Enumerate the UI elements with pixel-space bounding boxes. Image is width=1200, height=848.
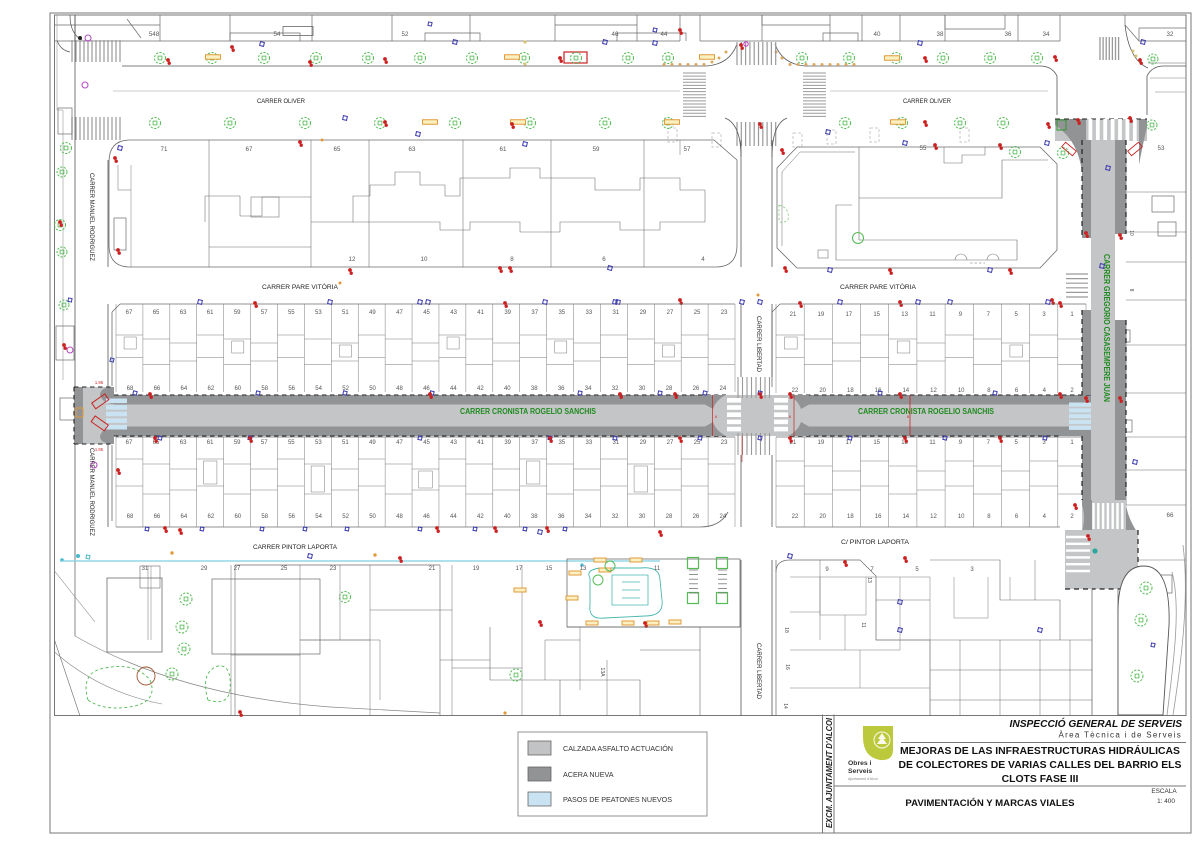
svg-text:31: 31 — [613, 440, 620, 446]
svg-text:63: 63 — [409, 146, 416, 153]
svg-text:57: 57 — [684, 146, 691, 153]
svg-text:ESCALA: ESCALA — [1151, 788, 1177, 795]
svg-text:67: 67 — [246, 146, 253, 153]
svg-text:38: 38 — [937, 31, 944, 38]
svg-text:67: 67 — [126, 440, 133, 446]
svg-text:66: 66 — [154, 514, 161, 520]
svg-text:23: 23 — [330, 566, 337, 572]
svg-text:57: 57 — [261, 440, 268, 446]
svg-text:4: 4 — [701, 256, 705, 263]
svg-text:Serveis: Serveis — [848, 768, 872, 775]
svg-text:60: 60 — [234, 386, 241, 392]
svg-text:60: 60 — [234, 514, 241, 520]
svg-text:59: 59 — [234, 440, 241, 446]
svg-text:548: 548 — [149, 31, 160, 38]
svg-text:13: 13 — [901, 312, 908, 318]
svg-text:35: 35 — [558, 440, 565, 446]
svg-text:66: 66 — [154, 386, 161, 392]
svg-text:49: 49 — [369, 310, 376, 316]
svg-text:CARRER OLIVER: CARRER OLIVER — [903, 98, 951, 105]
svg-text:22: 22 — [792, 514, 799, 520]
svg-text:8: 8 — [1128, 289, 1134, 292]
svg-text:21: 21 — [429, 566, 436, 572]
svg-text:11: 11 — [860, 622, 866, 627]
svg-text:19: 19 — [473, 566, 480, 572]
svg-text:CARRER GREGORIO CASASEMPERE: CARRER GREGORIO CASASEMPERE JUAN — [1102, 254, 1111, 402]
svg-text:11: 11 — [929, 312, 936, 318]
svg-text:41: 41 — [477, 310, 484, 316]
svg-text:41: 41 — [477, 440, 484, 446]
svg-text:45: 45 — [423, 440, 430, 446]
svg-text:C/ PINTOR LAPORTA: C/ PINTOR LAPORTA — [841, 539, 909, 546]
svg-text:1.95: 1.95 — [95, 380, 104, 385]
svg-text:48: 48 — [396, 386, 403, 392]
svg-text:1: 400: 1: 400 — [1157, 798, 1175, 805]
svg-text:68: 68 — [127, 386, 134, 392]
svg-text:29: 29 — [640, 310, 647, 316]
svg-text:26: 26 — [693, 514, 700, 520]
svg-text:36: 36 — [1005, 31, 1012, 38]
svg-text:65: 65 — [334, 146, 341, 153]
svg-text:19: 19 — [818, 312, 825, 318]
svg-text:40: 40 — [504, 386, 511, 392]
svg-text:35: 35 — [558, 310, 565, 316]
svg-text:51: 51 — [342, 310, 349, 316]
svg-text:44: 44 — [661, 31, 668, 38]
svg-text:42: 42 — [477, 386, 484, 392]
svg-text:23: 23 — [721, 310, 728, 316]
svg-text:28: 28 — [666, 514, 673, 520]
svg-text:10: 10 — [958, 388, 965, 394]
svg-text:27: 27 — [667, 440, 674, 446]
svg-text:36: 36 — [558, 386, 565, 392]
svg-text:25: 25 — [281, 566, 288, 572]
svg-text:29: 29 — [640, 440, 647, 446]
svg-text:32: 32 — [612, 386, 619, 392]
svg-text:32: 32 — [612, 514, 619, 520]
svg-text:34: 34 — [585, 386, 592, 392]
svg-text:54: 54 — [315, 514, 322, 520]
svg-text:14: 14 — [902, 514, 909, 520]
svg-text:17: 17 — [845, 440, 852, 446]
svg-text:20: 20 — [819, 514, 826, 520]
svg-text:CARRER PARE VITÒRIA: CARRER PARE VITÒRIA — [840, 282, 916, 291]
svg-text:21: 21 — [790, 312, 797, 318]
svg-text:13: 13 — [866, 577, 872, 583]
svg-text:26: 26 — [693, 386, 700, 392]
svg-text:27: 27 — [667, 310, 674, 316]
svg-text:53: 53 — [315, 310, 322, 316]
svg-text:15: 15 — [873, 312, 880, 318]
svg-text:CARRER MANUEL RODRIGUEZ: CARRER MANUEL RODRIGUEZ — [88, 448, 95, 536]
svg-text:34: 34 — [585, 514, 592, 520]
svg-text:39: 39 — [504, 310, 511, 316]
svg-text:13A: 13A — [599, 668, 605, 678]
svg-text:EXCM. AJUNTAMENT D'ALCOI: EXCM. AJUNTAMENT D'ALCOI — [825, 717, 834, 828]
svg-text:71: 71 — [161, 146, 168, 153]
svg-text:52: 52 — [402, 31, 409, 38]
svg-text:58: 58 — [261, 514, 268, 520]
svg-text:59: 59 — [234, 310, 241, 316]
svg-text:47: 47 — [396, 310, 403, 316]
svg-text:44: 44 — [450, 386, 457, 392]
svg-text:ACERA NUEVA: ACERA NUEVA — [563, 770, 614, 779]
svg-text:25: 25 — [694, 310, 701, 316]
svg-text:12: 12 — [349, 256, 356, 263]
svg-text:33: 33 — [586, 440, 593, 446]
svg-text:31: 31 — [142, 566, 149, 572]
svg-text:30: 30 — [639, 514, 646, 520]
svg-text:64: 64 — [181, 386, 188, 392]
svg-text:16: 16 — [784, 664, 790, 670]
svg-text:CARRER LIBERTAD: CARRER LIBERTAD — [755, 316, 762, 372]
svg-text:44: 44 — [450, 514, 457, 520]
svg-text:11: 11 — [654, 566, 661, 572]
svg-text:8: 8 — [510, 256, 514, 263]
svg-text:61: 61 — [207, 310, 214, 316]
svg-text:PASOS DE PEATONES NUEVOS: PASOS DE PEATONES NUEVOS — [563, 795, 672, 804]
svg-text:68: 68 — [127, 514, 134, 520]
svg-text:36: 36 — [558, 514, 565, 520]
svg-text:10: 10 — [421, 256, 428, 263]
svg-text:55: 55 — [920, 145, 927, 152]
svg-text:56: 56 — [288, 514, 295, 520]
svg-text:18: 18 — [783, 627, 789, 633]
svg-text:46: 46 — [612, 31, 619, 38]
svg-text:54: 54 — [315, 386, 322, 392]
svg-text:50: 50 — [369, 514, 376, 520]
svg-text:17: 17 — [845, 312, 852, 318]
svg-text:29: 29 — [201, 566, 208, 572]
svg-text:63: 63 — [180, 310, 187, 316]
svg-text:CARRER PINTOR LAPORTA: CARRER PINTOR LAPORTA — [253, 544, 337, 551]
svg-text:61: 61 — [207, 440, 214, 446]
svg-text:61: 61 — [500, 146, 507, 153]
svg-text:40: 40 — [874, 31, 881, 38]
svg-text:DE COLECTORES DE VARIAS CALLES: DE COLECTORES DE VARIAS CALLES DEL BARRI… — [899, 760, 1182, 771]
svg-text:46: 46 — [423, 386, 430, 392]
svg-text:43: 43 — [450, 440, 457, 446]
svg-text:63: 63 — [180, 440, 187, 446]
svg-text:48: 48 — [396, 514, 403, 520]
svg-text:28: 28 — [666, 386, 673, 392]
svg-text:23: 23 — [721, 440, 728, 446]
svg-text:22: 22 — [792, 388, 799, 394]
svg-text:59: 59 — [593, 146, 600, 153]
svg-text:13: 13 — [580, 566, 587, 572]
svg-text:14: 14 — [782, 703, 788, 709]
svg-text:66: 66 — [1167, 512, 1174, 519]
svg-text:12: 12 — [930, 514, 937, 520]
svg-text:CALZADA ASFALTO ACTUACIÓN: CALZADA ASFALTO ACTUACIÓN — [563, 744, 673, 753]
svg-text:CARRER LIBERTAD: CARRER LIBERTAD — [755, 643, 762, 699]
svg-text:25: 25 — [694, 440, 701, 446]
svg-text:15: 15 — [546, 566, 553, 572]
svg-text:50: 50 — [369, 386, 376, 392]
svg-text:MEJORAS DE LAS INFRAESTRUCTURA: MEJORAS DE LAS INFRAESTRUCTURAS HIDRÁULI… — [900, 744, 1180, 757]
svg-text:20: 20 — [819, 388, 826, 394]
svg-text:Obres i: Obres i — [848, 760, 872, 767]
svg-text:49: 49 — [369, 440, 376, 446]
svg-text:19: 19 — [818, 440, 825, 446]
svg-text:CARRER PARE VITÒRIA: CARRER PARE VITÒRIA — [262, 282, 338, 291]
svg-text:40: 40 — [504, 514, 511, 520]
svg-text:53: 53 — [1158, 145, 1165, 152]
svg-text:PAVIMENTACIÓN Y MARCAS VIALES: PAVIMENTACIÓN Y MARCAS VIALES — [905, 797, 1075, 809]
svg-text:58: 58 — [261, 386, 268, 392]
svg-text:CARRER MANUEL RODRIGUEZ: CARRER MANUEL RODRIGUEZ — [88, 173, 95, 261]
svg-text:67: 67 — [126, 310, 133, 316]
svg-text:62: 62 — [208, 514, 215, 520]
svg-text:56: 56 — [288, 386, 295, 392]
svg-text:57: 57 — [261, 310, 268, 316]
svg-text:64: 64 — [181, 514, 188, 520]
svg-text:CARRER CRONISTA ROGELIO SANCHI: CARRER CRONISTA ROGELIO SANCHIS — [858, 406, 994, 416]
svg-text:33: 33 — [586, 310, 593, 316]
svg-text:11: 11 — [929, 440, 936, 446]
svg-text:37: 37 — [531, 440, 538, 446]
svg-text:1.95: 1.95 — [95, 447, 104, 452]
svg-text:62: 62 — [208, 386, 215, 392]
svg-text:6: 6 — [789, 415, 791, 419]
svg-text:24: 24 — [720, 514, 727, 520]
svg-text:39: 39 — [504, 440, 511, 446]
svg-text:14: 14 — [902, 388, 909, 394]
svg-text:17: 17 — [516, 566, 523, 572]
svg-text:30: 30 — [639, 386, 646, 392]
svg-text:53: 53 — [315, 440, 322, 446]
svg-text:INSPECCIÓ GENERAL DE SERVEIS: INSPECCIÓ GENERAL DE SERVEIS — [1010, 717, 1183, 730]
svg-text:16: 16 — [875, 514, 882, 520]
svg-text:CARRER OLIVER: CARRER OLIVER — [257, 98, 305, 105]
svg-text:18: 18 — [847, 514, 854, 520]
svg-text:10: 10 — [958, 514, 965, 520]
svg-text:55: 55 — [288, 440, 295, 446]
svg-text:55: 55 — [288, 310, 295, 316]
svg-text:Ajuntament d'Alcoi: Ajuntament d'Alcoi — [848, 777, 878, 781]
svg-text:CARRER CRONISTA ROGELIO SANCHI: CARRER CRONISTA ROGELIO SANCHIS — [460, 406, 596, 416]
svg-text:15: 15 — [873, 440, 880, 446]
svg-text:38: 38 — [531, 514, 538, 520]
svg-text:Àrea Tècnica i de Serveis: Àrea Tècnica i de Serveis — [1058, 731, 1182, 740]
svg-text:52: 52 — [342, 514, 349, 520]
svg-text:47: 47 — [396, 440, 403, 446]
svg-text:46: 46 — [423, 514, 430, 520]
svg-text:18: 18 — [847, 388, 854, 394]
svg-text:51: 51 — [342, 440, 349, 446]
svg-text:31: 31 — [613, 310, 620, 316]
svg-text:45: 45 — [423, 310, 430, 316]
svg-text:10: 10 — [1128, 230, 1134, 236]
svg-text:54: 54 — [274, 31, 281, 38]
svg-text:32: 32 — [1167, 31, 1174, 38]
svg-text:42: 42 — [477, 514, 484, 520]
svg-text:6: 6 — [602, 256, 606, 263]
svg-text:37: 37 — [531, 310, 538, 316]
svg-text:34: 34 — [1043, 31, 1050, 38]
svg-text:CLOTS FASE III: CLOTS FASE III — [1002, 774, 1079, 785]
svg-text:6: 6 — [715, 415, 717, 419]
svg-text:43: 43 — [450, 310, 457, 316]
svg-text:12: 12 — [930, 388, 937, 394]
svg-text:65: 65 — [153, 310, 160, 316]
svg-text:38: 38 — [531, 386, 538, 392]
svg-text:24: 24 — [720, 386, 727, 392]
